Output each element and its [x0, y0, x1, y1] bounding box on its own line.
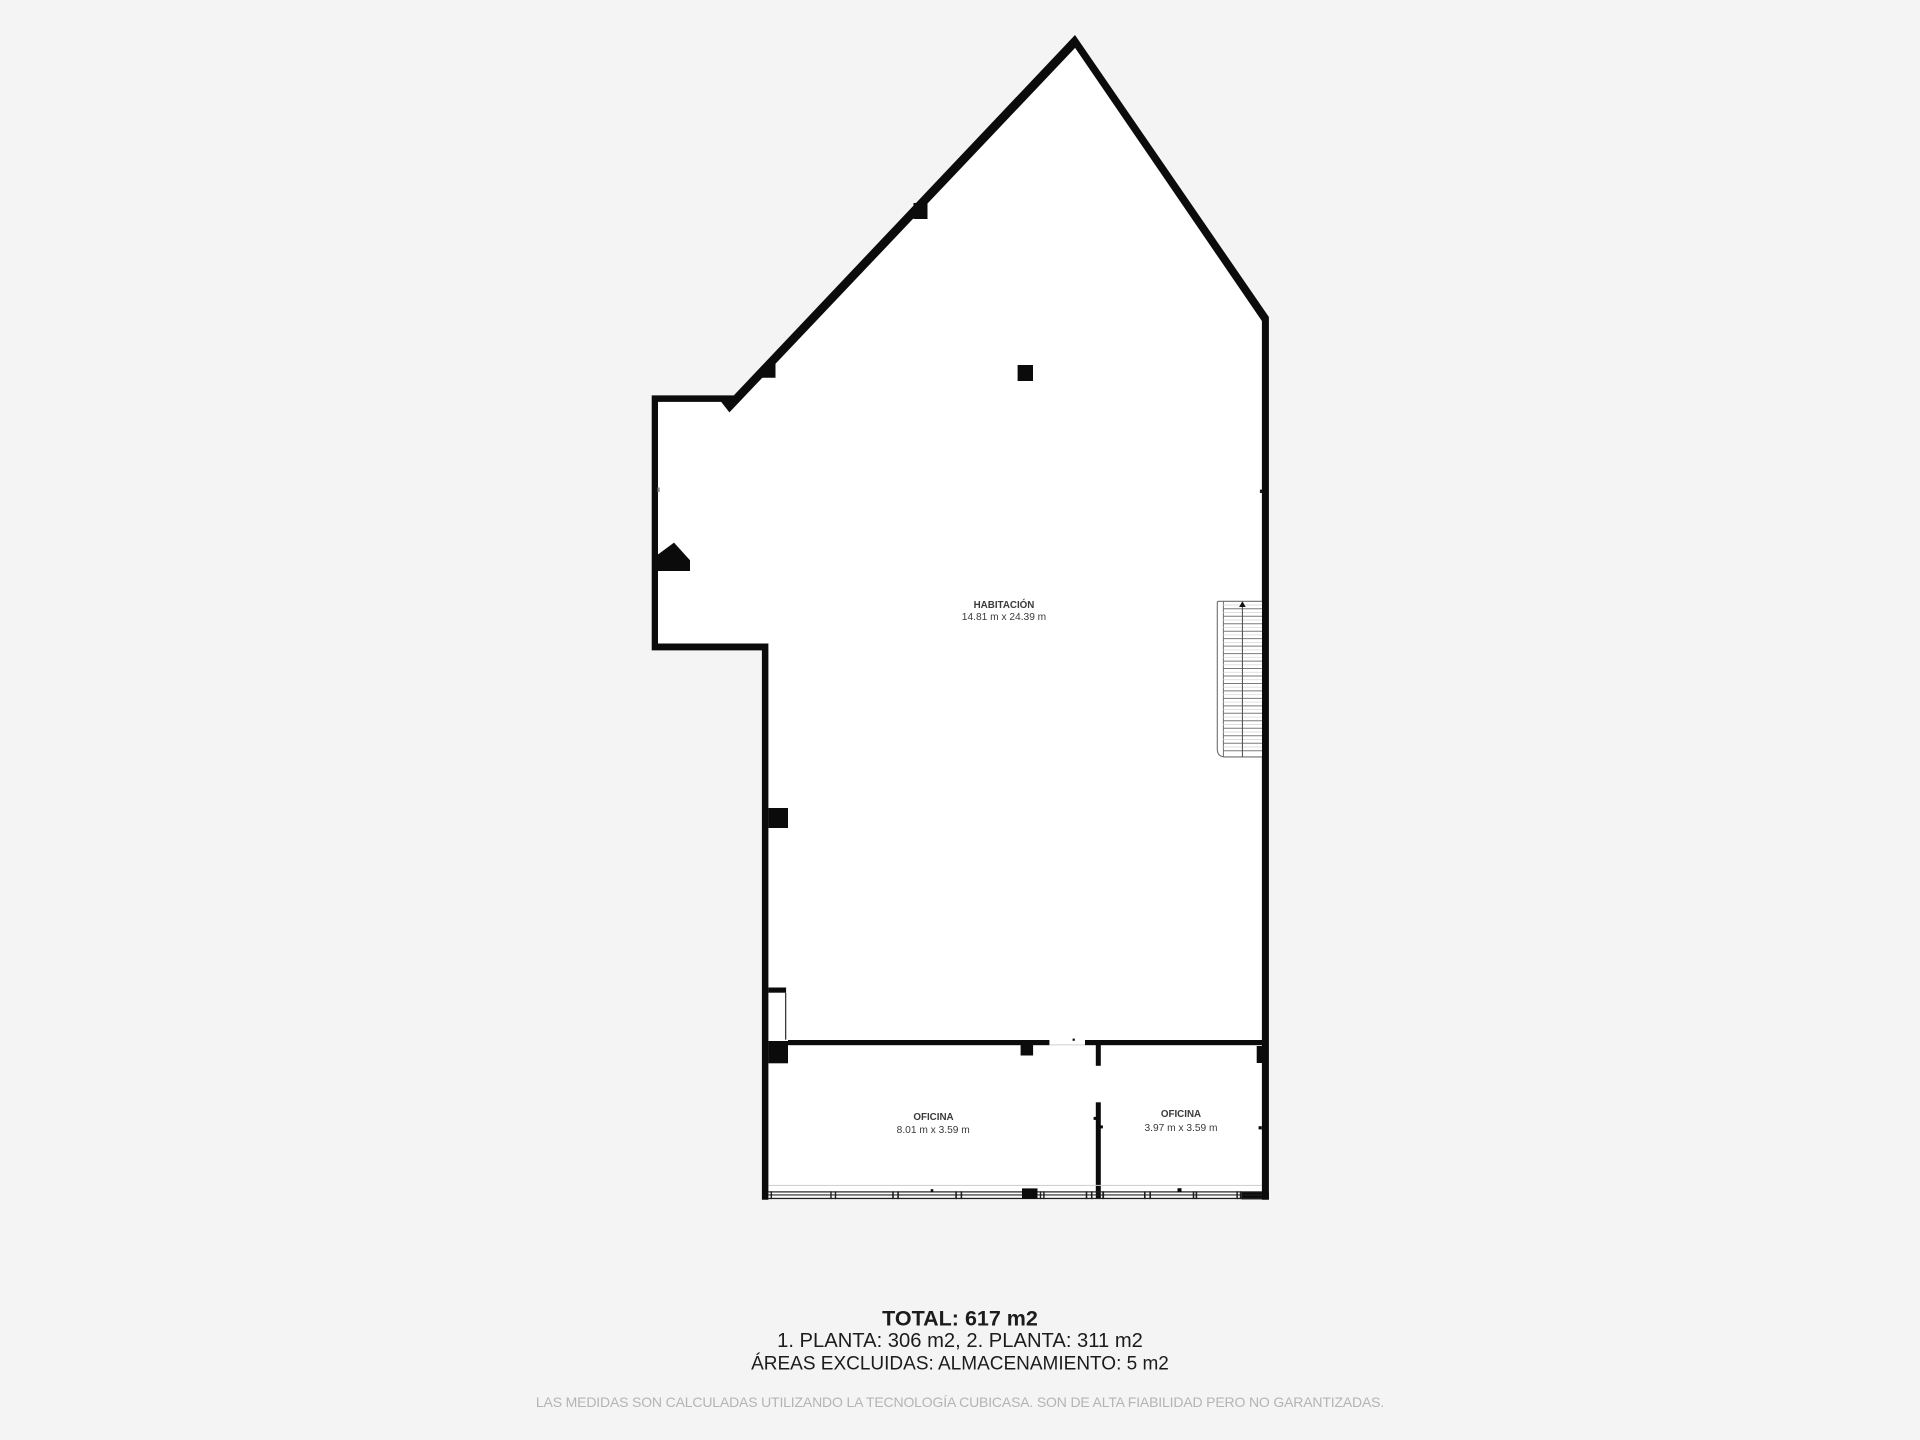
svg-text:OFICINA: OFICINA [913, 1112, 953, 1123]
svg-text:OFICINA: OFICINA [1161, 1109, 1201, 1120]
svg-text:8.01 m x 3.59 m: 8.01 m x 3.59 m [897, 1125, 970, 1136]
svg-text:3.97 m x 3.59 m: 3.97 m x 3.59 m [1144, 1123, 1217, 1134]
svg-text:1. PLANTA: 306 m2, 2. PLANTA:: 1. PLANTA: 306 m2, 2. PLANTA: 311 m2 [777, 1330, 1143, 1352]
svg-text:LAS MEDIDAS SON CALCULADAS UTI: LAS MEDIDAS SON CALCULADAS UTILIZANDO LA… [536, 1394, 1384, 1410]
svg-text:ÁREAS EXCLUIDAS: ALMACENAMIENT: ÁREAS EXCLUIDAS: ALMACENAMIENTO: 5 m2 [751, 1354, 1169, 1375]
svg-text:14.81 m x 24.39 m: 14.81 m x 24.39 m [962, 612, 1046, 623]
svg-text:HABITACIÓN: HABITACIÓN [974, 599, 1035, 611]
svg-text:TOTAL: 617 m2: TOTAL: 617 m2 [882, 1307, 1038, 1331]
